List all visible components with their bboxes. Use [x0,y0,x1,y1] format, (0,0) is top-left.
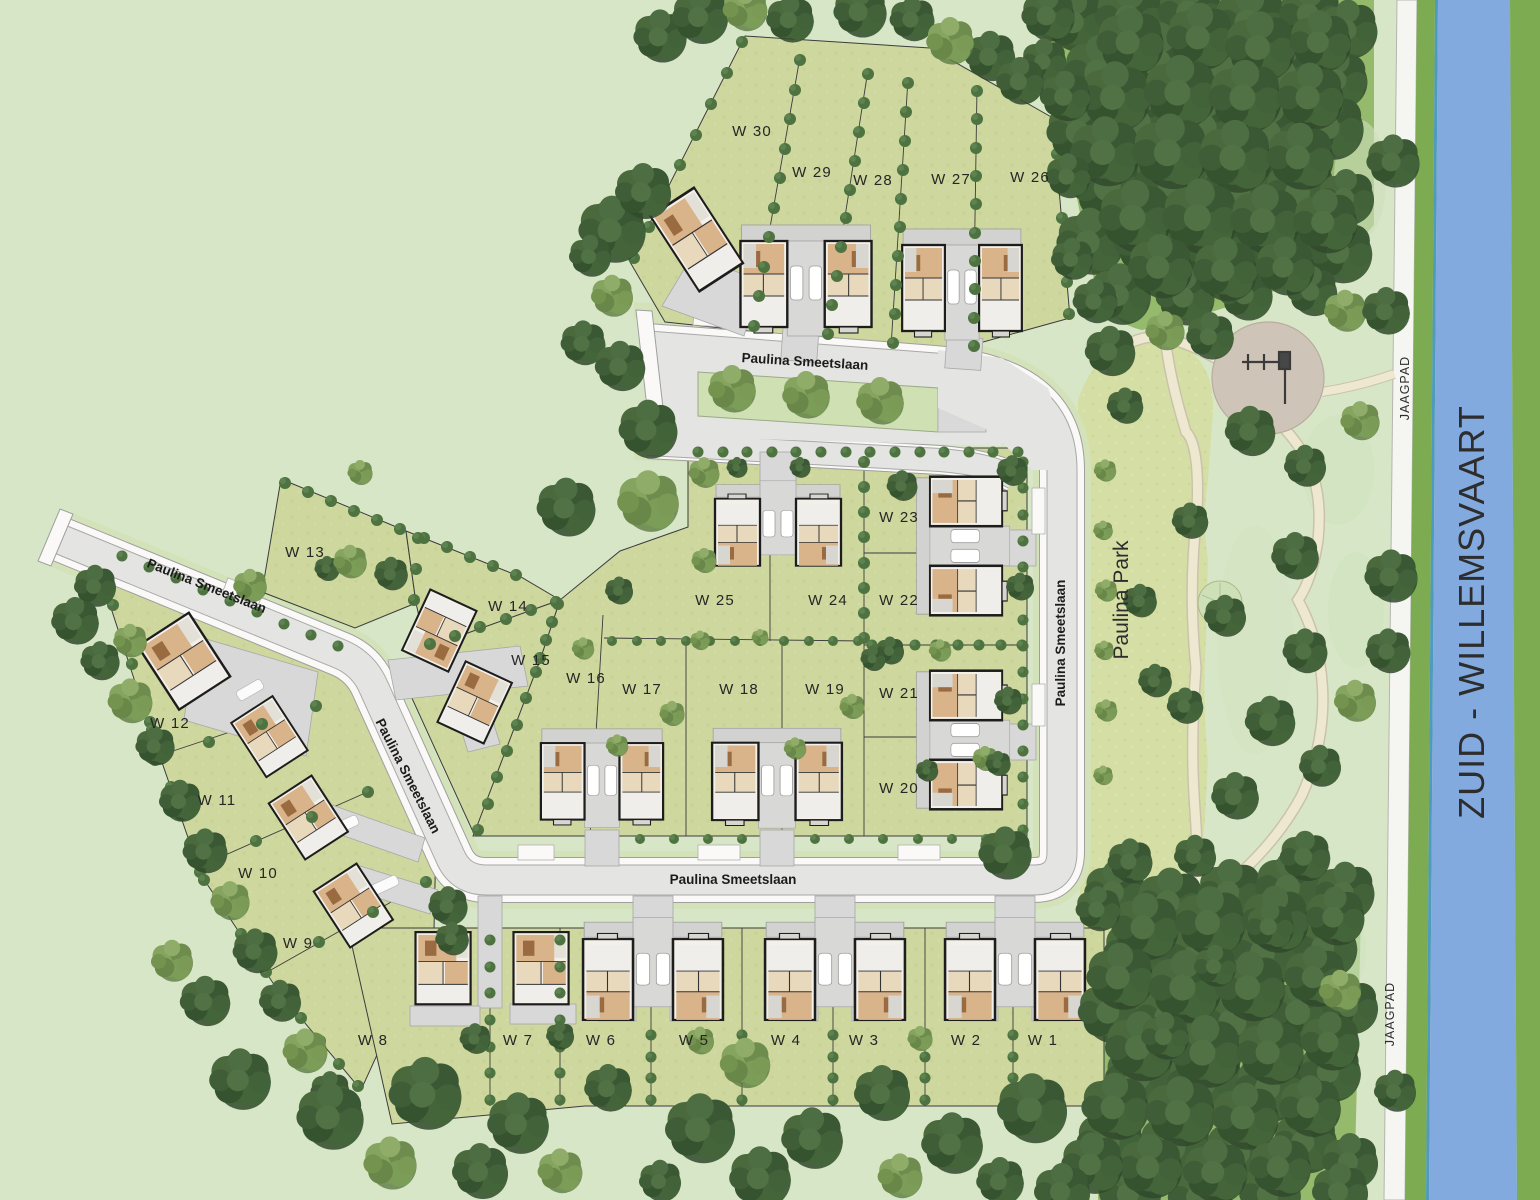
svg-text:W 20: W 20 [879,780,919,797]
svg-text:W 11: W 11 [198,792,237,809]
svg-text:W 12: W 12 [150,715,190,732]
svg-text:Paulina Smeetslaan: Paulina Smeetslaan [670,872,797,887]
svg-text:W 23: W 23 [879,509,919,526]
svg-text:W 16: W 16 [566,670,606,687]
svg-text:W 17: W 17 [622,681,662,698]
svg-text:W 1: W 1 [1028,1032,1058,1049]
svg-text:W 28: W 28 [853,172,893,189]
svg-text:W 30: W 30 [732,123,772,140]
svg-text:W 9: W 9 [283,935,313,952]
svg-text:W 18: W 18 [719,681,759,698]
svg-text:W 14: W 14 [488,598,528,615]
svg-text:W 4: W 4 [771,1032,801,1049]
svg-text:W 29: W 29 [792,164,832,181]
svg-text:W 26: W 26 [1010,169,1050,186]
svg-text:W 19: W 19 [805,681,845,698]
svg-text:W 21: W 21 [879,685,919,702]
svg-text:ZUID - WILLEMSVAART: ZUID - WILLEMSVAART [1451,405,1492,819]
svg-text:W 8: W 8 [358,1032,388,1049]
svg-text:W 15: W 15 [511,652,551,669]
svg-text:W 27: W 27 [931,171,971,188]
svg-text:W 10: W 10 [238,865,278,882]
svg-text:W 22: W 22 [879,592,919,609]
svg-text:W 24: W 24 [808,592,848,609]
svg-text:JAAGPAD: JAAGPAD [1383,982,1397,1046]
svg-text:W 7: W 7 [503,1032,533,1049]
svg-text:W 25: W 25 [695,592,735,609]
svg-text:Paulina Park: Paulina Park [1110,540,1133,660]
svg-text:W 5: W 5 [679,1032,709,1049]
svg-text:JAAGPAD: JAAGPAD [1398,356,1412,420]
svg-text:Paulina Smeetslaan: Paulina Smeetslaan [1053,580,1068,707]
svg-text:W 3: W 3 [849,1032,879,1049]
svg-text:W 2: W 2 [951,1032,981,1049]
svg-text:W 13: W 13 [285,544,325,561]
svg-text:W 6: W 6 [586,1032,616,1049]
